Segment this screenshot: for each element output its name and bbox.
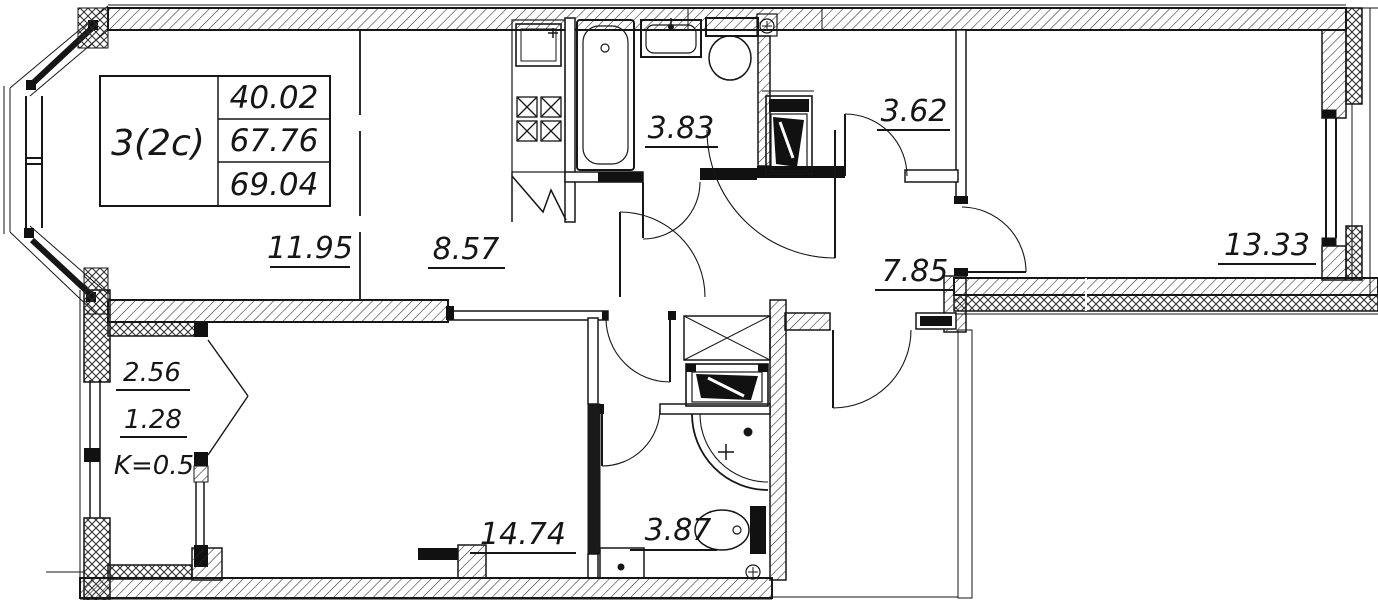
room-label-storage: 3.62 bbox=[881, 94, 948, 129]
door-entrance bbox=[833, 330, 911, 408]
area-row-2: 67.76 bbox=[230, 123, 319, 159]
window-right bbox=[1322, 110, 1336, 246]
bay-window bbox=[4, 6, 108, 314]
area-row-3: 69.04 bbox=[230, 167, 319, 203]
room-label-kitchen: 8.57 bbox=[433, 232, 500, 267]
corner-washbasin-icon bbox=[692, 414, 768, 490]
balcony-coefficient: K=0.5 bbox=[114, 451, 194, 481]
door-bathroom-2 bbox=[602, 408, 660, 466]
door-room-right bbox=[962, 207, 1026, 272]
title-block: 3(2c) 40.02 67.76 69.04 bbox=[100, 76, 330, 206]
balcony-area-reduced: 1.28 bbox=[124, 405, 182, 435]
room-label-bathroom: 3.83 bbox=[648, 111, 715, 146]
bathtub-icon bbox=[577, 20, 634, 170]
unit-label: 3(2c) bbox=[111, 123, 205, 164]
kitchen-sink-icon bbox=[512, 20, 565, 172]
floor-plan-drawing: 3(2c) 40.02 67.76 69.04 11.95 8.57 3.83 … bbox=[0, 0, 1378, 600]
room-label-hall: 7.85 bbox=[882, 254, 949, 289]
room-label-bathroom-2: 3.87 bbox=[645, 513, 712, 548]
room-label-living: 11.95 bbox=[267, 231, 353, 266]
room-label-bedroom: 14.74 bbox=[480, 517, 566, 552]
wardrobe-icon bbox=[684, 316, 770, 360]
door-bedroom bbox=[606, 318, 670, 382]
room-label-room-right: 13.33 bbox=[1224, 228, 1310, 263]
washbasin-2-icon bbox=[600, 548, 644, 578]
balcony-area-full: 2.56 bbox=[123, 358, 181, 388]
area-row-1: 40.02 bbox=[230, 80, 319, 116]
door-corridor-left bbox=[620, 212, 705, 297]
refrigerator-niche-icon bbox=[512, 172, 566, 222]
floor-plan: 3(2c) 40.02 67.76 69.04 11.95 8.57 3.83 … bbox=[0, 0, 1378, 600]
door-bathroom bbox=[643, 182, 700, 239]
stove-icon bbox=[517, 97, 561, 141]
radiator-icon bbox=[418, 548, 458, 560]
washing-machine-2-icon bbox=[686, 364, 768, 406]
door-balcony bbox=[208, 340, 248, 455]
